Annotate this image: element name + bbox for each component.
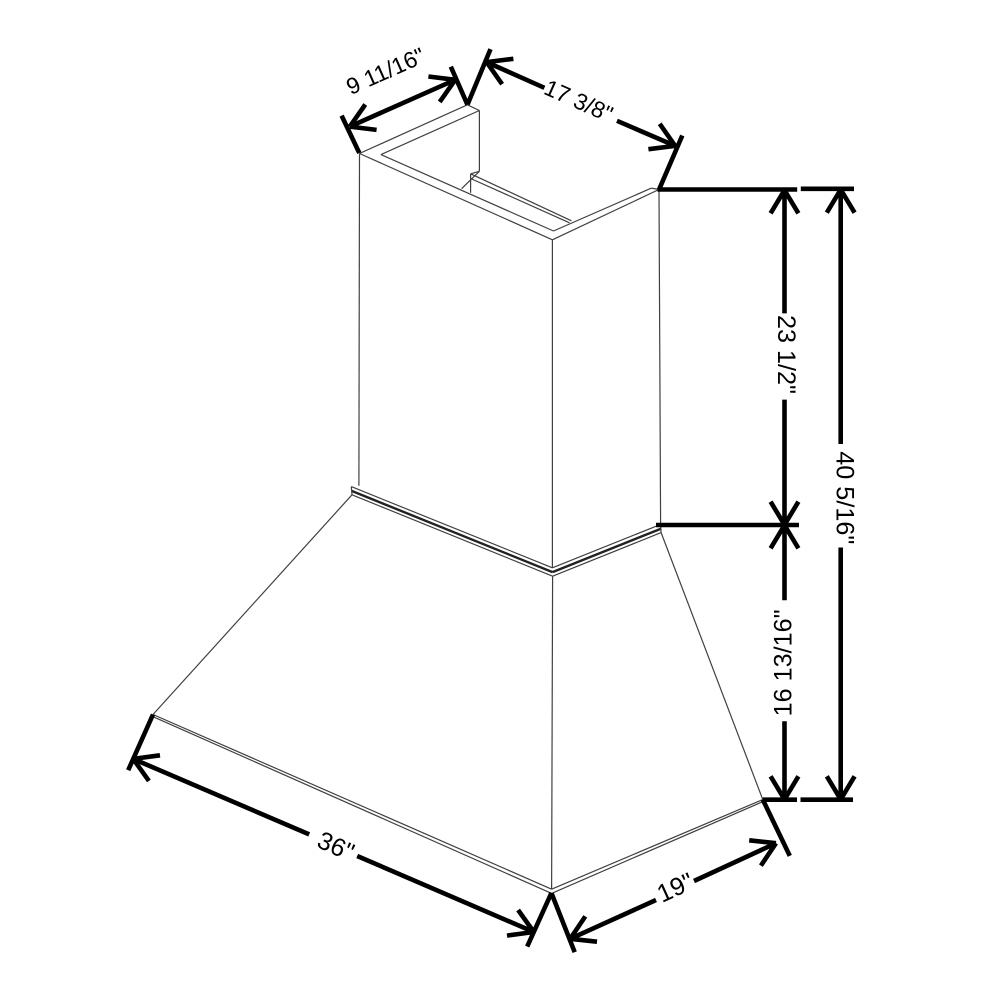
- svg-text:19": 19": [653, 868, 698, 909]
- svg-text:17 3/8": 17 3/8": [540, 74, 616, 127]
- svg-text:16 13/16": 16 13/16": [770, 609, 798, 716]
- svg-text:23 1/2": 23 1/2": [772, 315, 800, 394]
- svg-text:9 11/16": 9 11/16": [342, 42, 429, 100]
- svg-text:40 5/16": 40 5/16": [830, 451, 858, 544]
- svg-text:36": 36": [313, 826, 358, 867]
